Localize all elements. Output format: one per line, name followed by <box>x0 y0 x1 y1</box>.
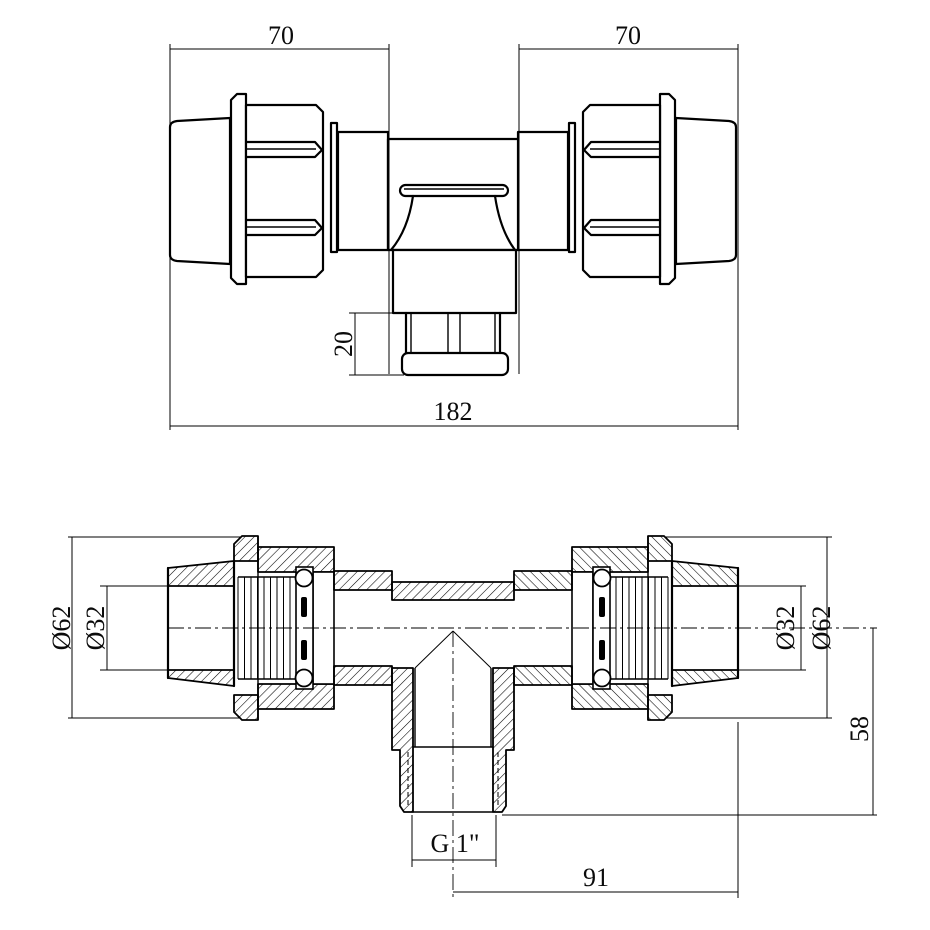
compression-nut <box>246 105 323 277</box>
section-view: Ø62 Ø32 Ø32 Ø62 <box>47 536 877 898</box>
pipe-end-cap <box>170 118 230 264</box>
dim-label-182: 182 <box>434 397 473 426</box>
body-rib <box>400 185 508 196</box>
o-ring-bottom <box>296 670 313 687</box>
dimension-g1: G 1" <box>412 815 496 867</box>
top-view: 70 70 20 182 <box>170 21 738 430</box>
technical-drawing-canvas: 70 70 20 182 <box>0 0 930 930</box>
branch-wall-right <box>493 668 514 812</box>
body-cone-section <box>338 132 388 250</box>
nut-flange-section <box>234 536 258 561</box>
body-wall-top <box>334 571 392 590</box>
dimension-70-right: 70 <box>519 21 738 50</box>
branch-wall-left <box>392 668 413 812</box>
dim-label-g1: G 1" <box>431 829 480 858</box>
gasket-ring <box>331 123 337 252</box>
top-view-left-half <box>170 94 388 284</box>
o-ring-top <box>296 570 313 587</box>
thread-collar <box>402 353 508 375</box>
body-wall-bottom <box>334 666 392 685</box>
dimension-20: 20 <box>329 313 404 375</box>
nut-flange <box>231 94 246 284</box>
dimension-d32-left: Ø32 <box>81 586 234 670</box>
branch-block <box>393 250 516 313</box>
dim-label-d62-right: Ø62 <box>807 606 836 651</box>
dim-label-70-left: 70 <box>268 21 294 50</box>
dim-label-d32-left: Ø32 <box>81 606 110 651</box>
dimension-58: 58 <box>502 628 877 815</box>
technical-drawing-page: 70 70 20 182 <box>0 0 930 930</box>
pipe-end-cap-section <box>168 561 234 586</box>
dim-label-d32-right: Ø32 <box>771 606 800 651</box>
dimension-182: 182 <box>170 397 738 426</box>
dim-label-91: 91 <box>583 863 609 892</box>
dimension-70-left: 70 <box>170 21 389 50</box>
dim-label-70-right: 70 <box>615 21 641 50</box>
run-top-wall <box>392 582 514 600</box>
dim-label-58: 58 <box>845 716 874 742</box>
dim-label-d62-left: Ø62 <box>47 606 76 651</box>
dim-label-20: 20 <box>329 331 358 357</box>
branch-thread-stub <box>406 313 500 353</box>
